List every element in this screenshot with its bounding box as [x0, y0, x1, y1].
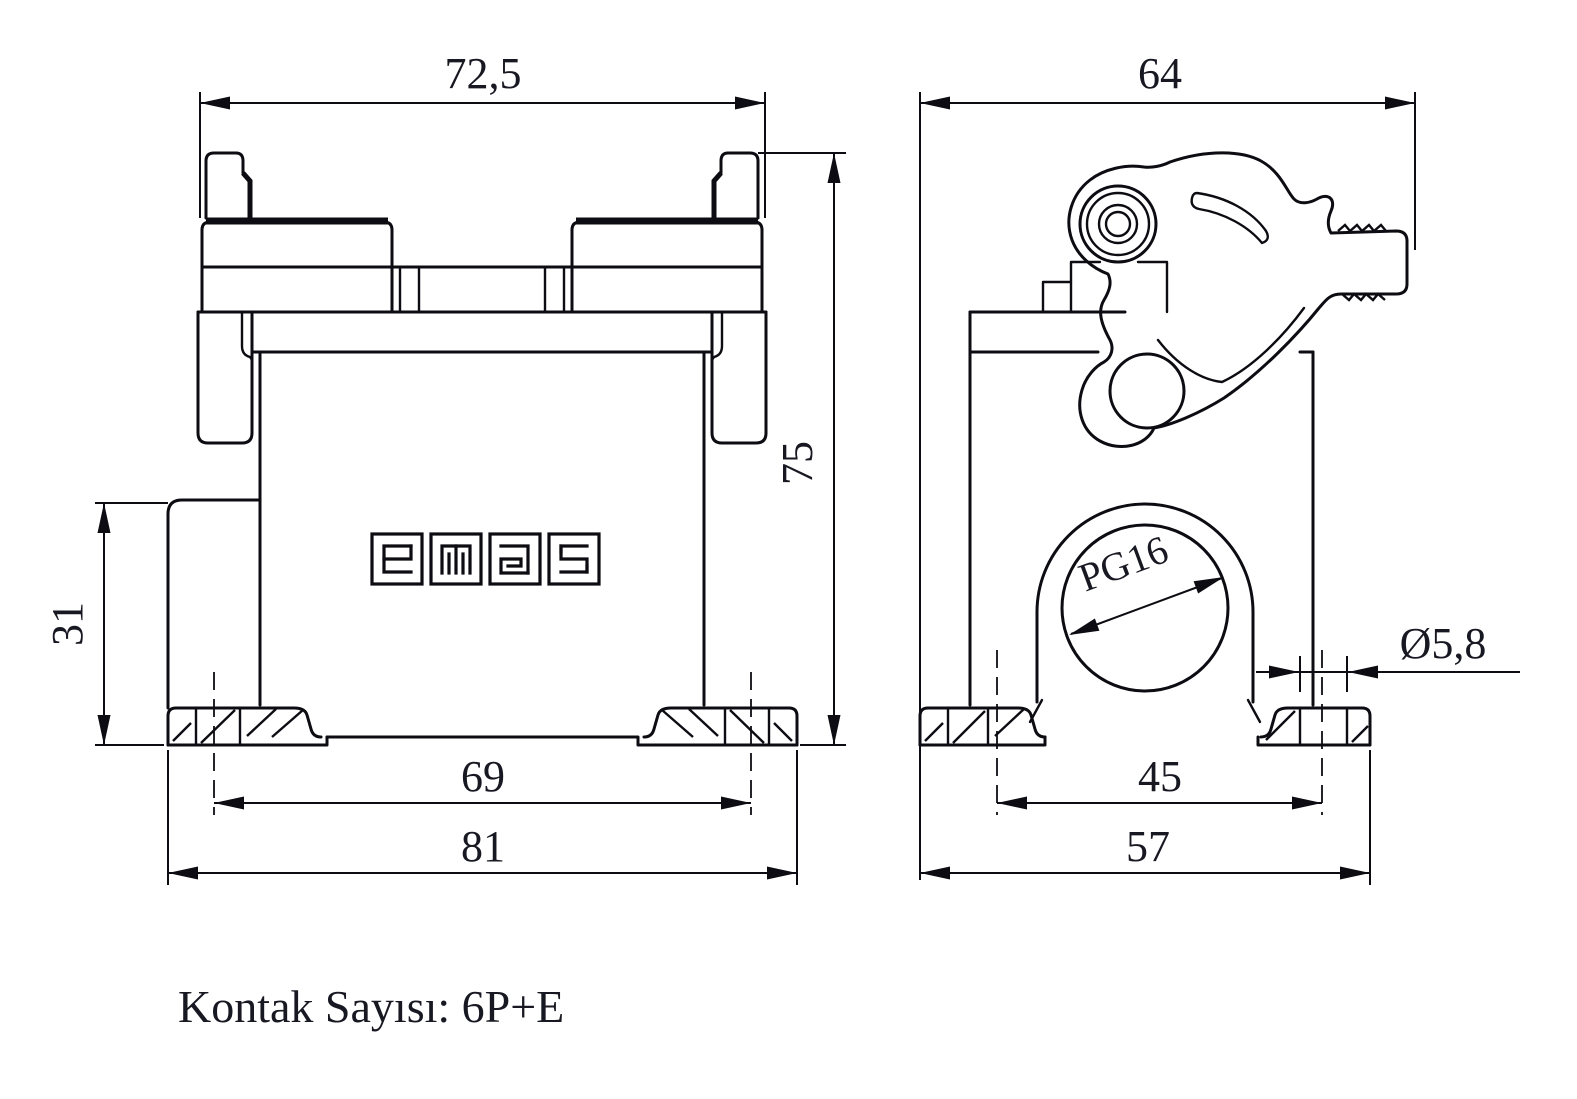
arrowhead-down-icon	[828, 715, 841, 745]
dim-text-front-height: 75	[773, 441, 822, 485]
arrowhead-right-icon	[735, 97, 765, 110]
side-housing-body	[970, 262, 1313, 722]
arrowhead-right-icon	[1269, 666, 1299, 679]
arrowhead-left-icon	[200, 97, 230, 110]
latch-lever	[1069, 153, 1407, 447]
dim-front-height: 75	[758, 153, 846, 745]
contact-count-note: Kontak Sayısı: 6P+E	[178, 981, 564, 1032]
dim-mount-hole-dia: Ø5,8	[1256, 619, 1520, 679]
arrowhead-left-icon	[920, 867, 950, 880]
logo-letter-e	[372, 534, 422, 584]
front-view: 72,5 75 31 69	[43, 49, 846, 885]
lever-pivot-hole	[1110, 354, 1184, 428]
dim-side-hole-spacing: 45	[997, 752, 1322, 810]
lever-roller	[1080, 186, 1156, 262]
front-housing-body	[168, 352, 712, 737]
dim-text-front-width: 72,5	[445, 49, 522, 98]
dim-text-cable-gland: PG16	[1073, 526, 1174, 600]
arrowhead-right-icon	[1292, 797, 1322, 810]
drawing-page: 72,5 75 31 69	[0, 0, 1577, 1099]
lever-slot	[1192, 193, 1268, 243]
dim-boss-height: 31	[43, 503, 168, 745]
dim-front-hole-spacing: 69	[214, 752, 751, 810]
emas-logo	[372, 534, 599, 584]
logo-letter-a	[490, 534, 540, 584]
technical-drawing-canvas: 72,5 75 31 69	[0, 0, 1577, 1099]
dim-text-front-base-width: 81	[461, 822, 505, 871]
side-view: 64 PG16 Ø5,8 45 57	[920, 49, 1520, 885]
dim-text-side-hole-spacing: 45	[1138, 752, 1182, 801]
arrowhead-lower-left-icon	[1067, 618, 1100, 641]
arrowhead-right-icon	[721, 797, 751, 810]
dim-text-mount-hole-dia: Ø5,8	[1400, 619, 1487, 668]
logo-letter-m	[431, 534, 481, 584]
arrowhead-left-icon	[168, 867, 198, 880]
arrowhead-right-icon	[767, 867, 797, 880]
dim-text-front-hole-spacing: 69	[461, 752, 505, 801]
logo-letter-s	[549, 534, 599, 584]
dim-text-side-width: 64	[1138, 49, 1182, 98]
arrowhead-right-icon	[1385, 97, 1415, 110]
dim-front-top-width: 72,5	[200, 49, 765, 218]
arrowhead-down-icon	[98, 715, 111, 745]
arrowhead-up-icon	[98, 503, 111, 533]
arrowhead-left-icon	[997, 797, 1027, 810]
dim-text-side-base-width: 57	[1126, 822, 1170, 871]
dim-text-boss-height: 31	[43, 602, 92, 646]
arrowhead-up-icon	[828, 153, 841, 183]
front-hood-ears	[198, 153, 766, 443]
arrowhead-left-icon	[1348, 666, 1378, 679]
arrowhead-right-icon	[1340, 867, 1370, 880]
arrowhead-left-icon	[214, 797, 244, 810]
arrowhead-left-icon	[920, 97, 950, 110]
